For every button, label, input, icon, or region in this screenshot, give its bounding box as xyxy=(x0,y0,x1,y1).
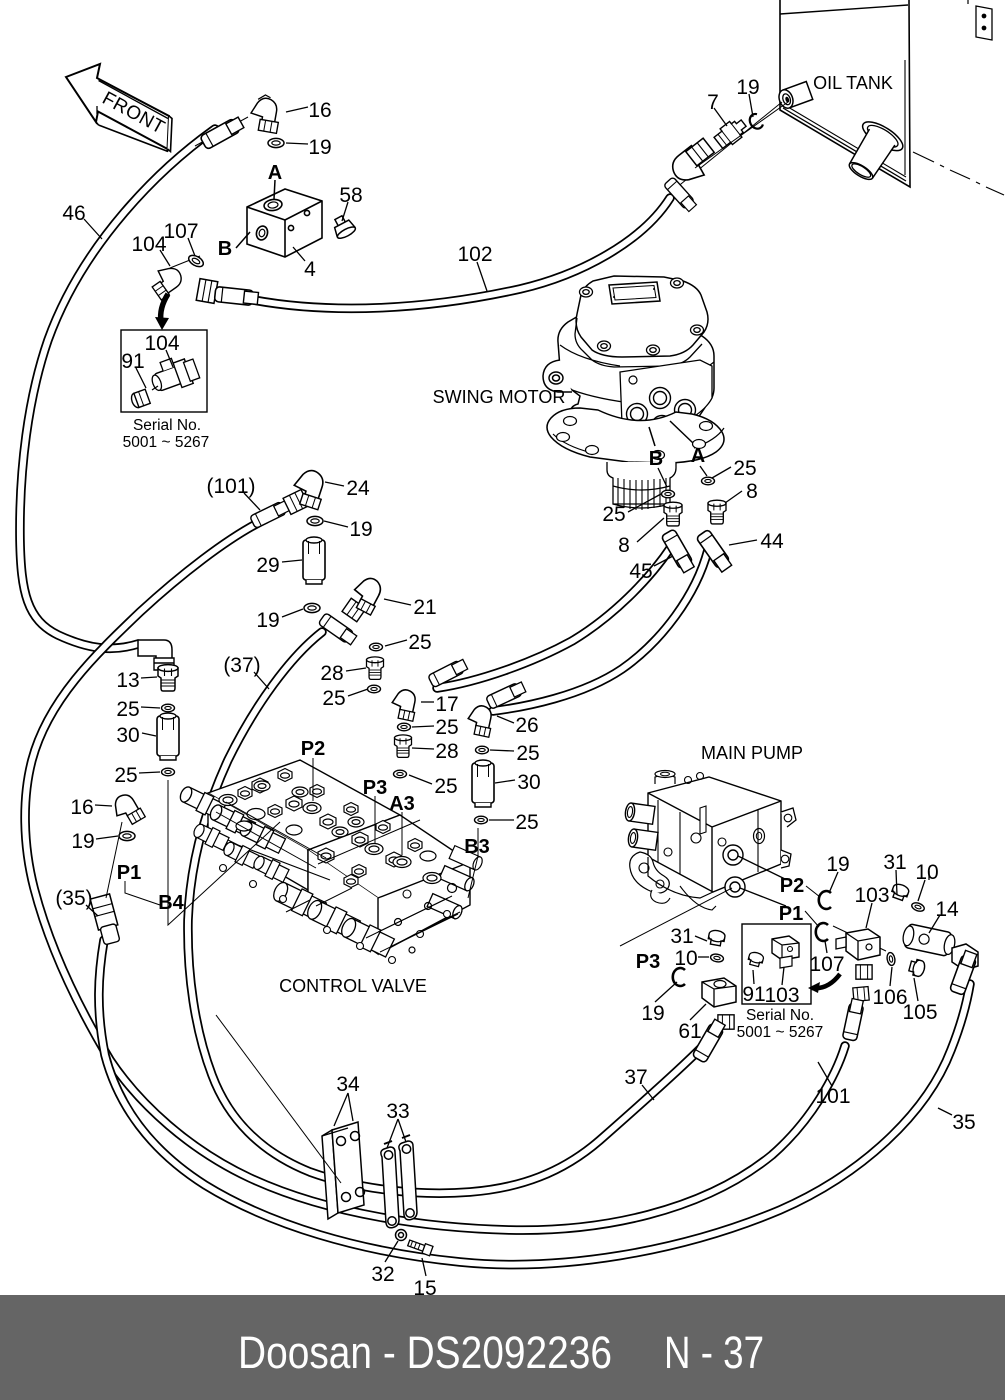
svg-text:P3: P3 xyxy=(636,951,660,973)
svg-text:19: 19 xyxy=(308,136,331,159)
svg-text:91: 91 xyxy=(742,983,765,1006)
svg-text:19: 19 xyxy=(826,853,849,876)
svg-text:91: 91 xyxy=(121,350,144,373)
svg-text:(101): (101) xyxy=(206,475,255,498)
svg-text:37: 37 xyxy=(624,1066,647,1089)
svg-text:CONTROL VALVE: CONTROL VALVE xyxy=(279,976,427,996)
svg-text:28: 28 xyxy=(435,740,458,763)
svg-text:58: 58 xyxy=(339,184,362,207)
svg-text:46: 46 xyxy=(62,202,85,225)
svg-text:P1: P1 xyxy=(779,903,803,925)
svg-text:B3: B3 xyxy=(464,836,490,858)
svg-text:25: 25 xyxy=(435,716,458,739)
svg-text:(37): (37) xyxy=(223,654,260,677)
svg-text:25: 25 xyxy=(516,742,539,765)
svg-text:5001 ~ 5267: 5001 ~ 5267 xyxy=(123,434,210,451)
svg-text:4: 4 xyxy=(304,258,316,281)
svg-text:OIL TANK: OIL TANK xyxy=(813,73,893,93)
svg-text:61: 61 xyxy=(678,1020,701,1043)
svg-text:8: 8 xyxy=(618,534,630,557)
svg-text:105: 105 xyxy=(902,1001,937,1024)
svg-text:44: 44 xyxy=(760,530,784,553)
svg-text:31: 31 xyxy=(670,925,693,948)
svg-text:104: 104 xyxy=(144,332,179,355)
svg-text:19: 19 xyxy=(256,609,279,632)
svg-text:13: 13 xyxy=(116,669,139,692)
svg-text:5001 ~ 5267: 5001 ~ 5267 xyxy=(737,1024,824,1041)
svg-text:SWING MOTOR: SWING MOTOR xyxy=(433,387,566,407)
svg-text:104: 104 xyxy=(131,233,166,256)
svg-text:21: 21 xyxy=(413,596,436,619)
svg-text:P2: P2 xyxy=(301,738,325,760)
svg-text:28: 28 xyxy=(320,662,343,685)
svg-text:B: B xyxy=(649,448,663,470)
svg-text:8: 8 xyxy=(746,480,758,503)
svg-text:25: 25 xyxy=(116,698,139,721)
svg-text:107: 107 xyxy=(163,220,198,243)
svg-text:19: 19 xyxy=(71,830,94,853)
svg-text:25: 25 xyxy=(602,503,625,526)
svg-text:25: 25 xyxy=(434,775,457,798)
svg-text:10: 10 xyxy=(915,861,938,884)
svg-text:103: 103 xyxy=(854,884,889,907)
svg-text:29: 29 xyxy=(256,554,279,577)
svg-text:32: 32 xyxy=(371,1263,394,1286)
svg-text:P2: P2 xyxy=(780,875,804,897)
svg-text:107: 107 xyxy=(809,953,844,976)
svg-text:19: 19 xyxy=(641,1002,664,1025)
svg-text:10: 10 xyxy=(674,947,697,970)
svg-text:14: 14 xyxy=(935,898,959,921)
svg-text:B4: B4 xyxy=(158,892,184,914)
svg-text:17: 17 xyxy=(435,693,458,716)
svg-text:(35): (35) xyxy=(55,887,92,910)
svg-text:34: 34 xyxy=(336,1073,360,1096)
svg-text:19: 19 xyxy=(349,518,372,541)
svg-text:30: 30 xyxy=(116,724,139,747)
svg-text:101: 101 xyxy=(815,1085,850,1108)
svg-text:102: 102 xyxy=(457,243,492,266)
svg-text:A: A xyxy=(268,162,282,184)
svg-text:P3: P3 xyxy=(363,777,387,799)
svg-text:19: 19 xyxy=(736,76,759,99)
svg-text:25: 25 xyxy=(322,687,345,710)
svg-text:16: 16 xyxy=(70,796,93,819)
svg-text:7: 7 xyxy=(707,91,719,114)
svg-text:33: 33 xyxy=(386,1100,409,1123)
svg-text:25: 25 xyxy=(515,811,538,834)
svg-text:31: 31 xyxy=(883,851,906,874)
svg-text:25: 25 xyxy=(408,631,431,654)
svg-text:N - 37: N - 37 xyxy=(664,1327,764,1378)
svg-text:Doosan - DS2092236: Doosan - DS2092236 xyxy=(238,1327,612,1378)
svg-text:Serial No.: Serial No. xyxy=(746,1007,814,1024)
svg-text:103: 103 xyxy=(764,984,799,1007)
svg-text:Serial No.: Serial No. xyxy=(133,417,201,434)
svg-text:30: 30 xyxy=(517,771,540,794)
svg-text:25: 25 xyxy=(114,764,137,787)
svg-text:16: 16 xyxy=(308,99,331,122)
svg-text:26: 26 xyxy=(515,714,538,737)
svg-text:25: 25 xyxy=(733,457,756,480)
svg-text:45: 45 xyxy=(629,560,652,583)
svg-text:B: B xyxy=(218,238,232,260)
svg-text:24: 24 xyxy=(346,477,370,500)
svg-text:35: 35 xyxy=(952,1111,975,1134)
svg-text:P1: P1 xyxy=(117,862,141,884)
svg-text:A3: A3 xyxy=(389,793,415,815)
svg-text:A: A xyxy=(691,445,705,467)
svg-text:MAIN PUMP: MAIN PUMP xyxy=(701,743,803,763)
